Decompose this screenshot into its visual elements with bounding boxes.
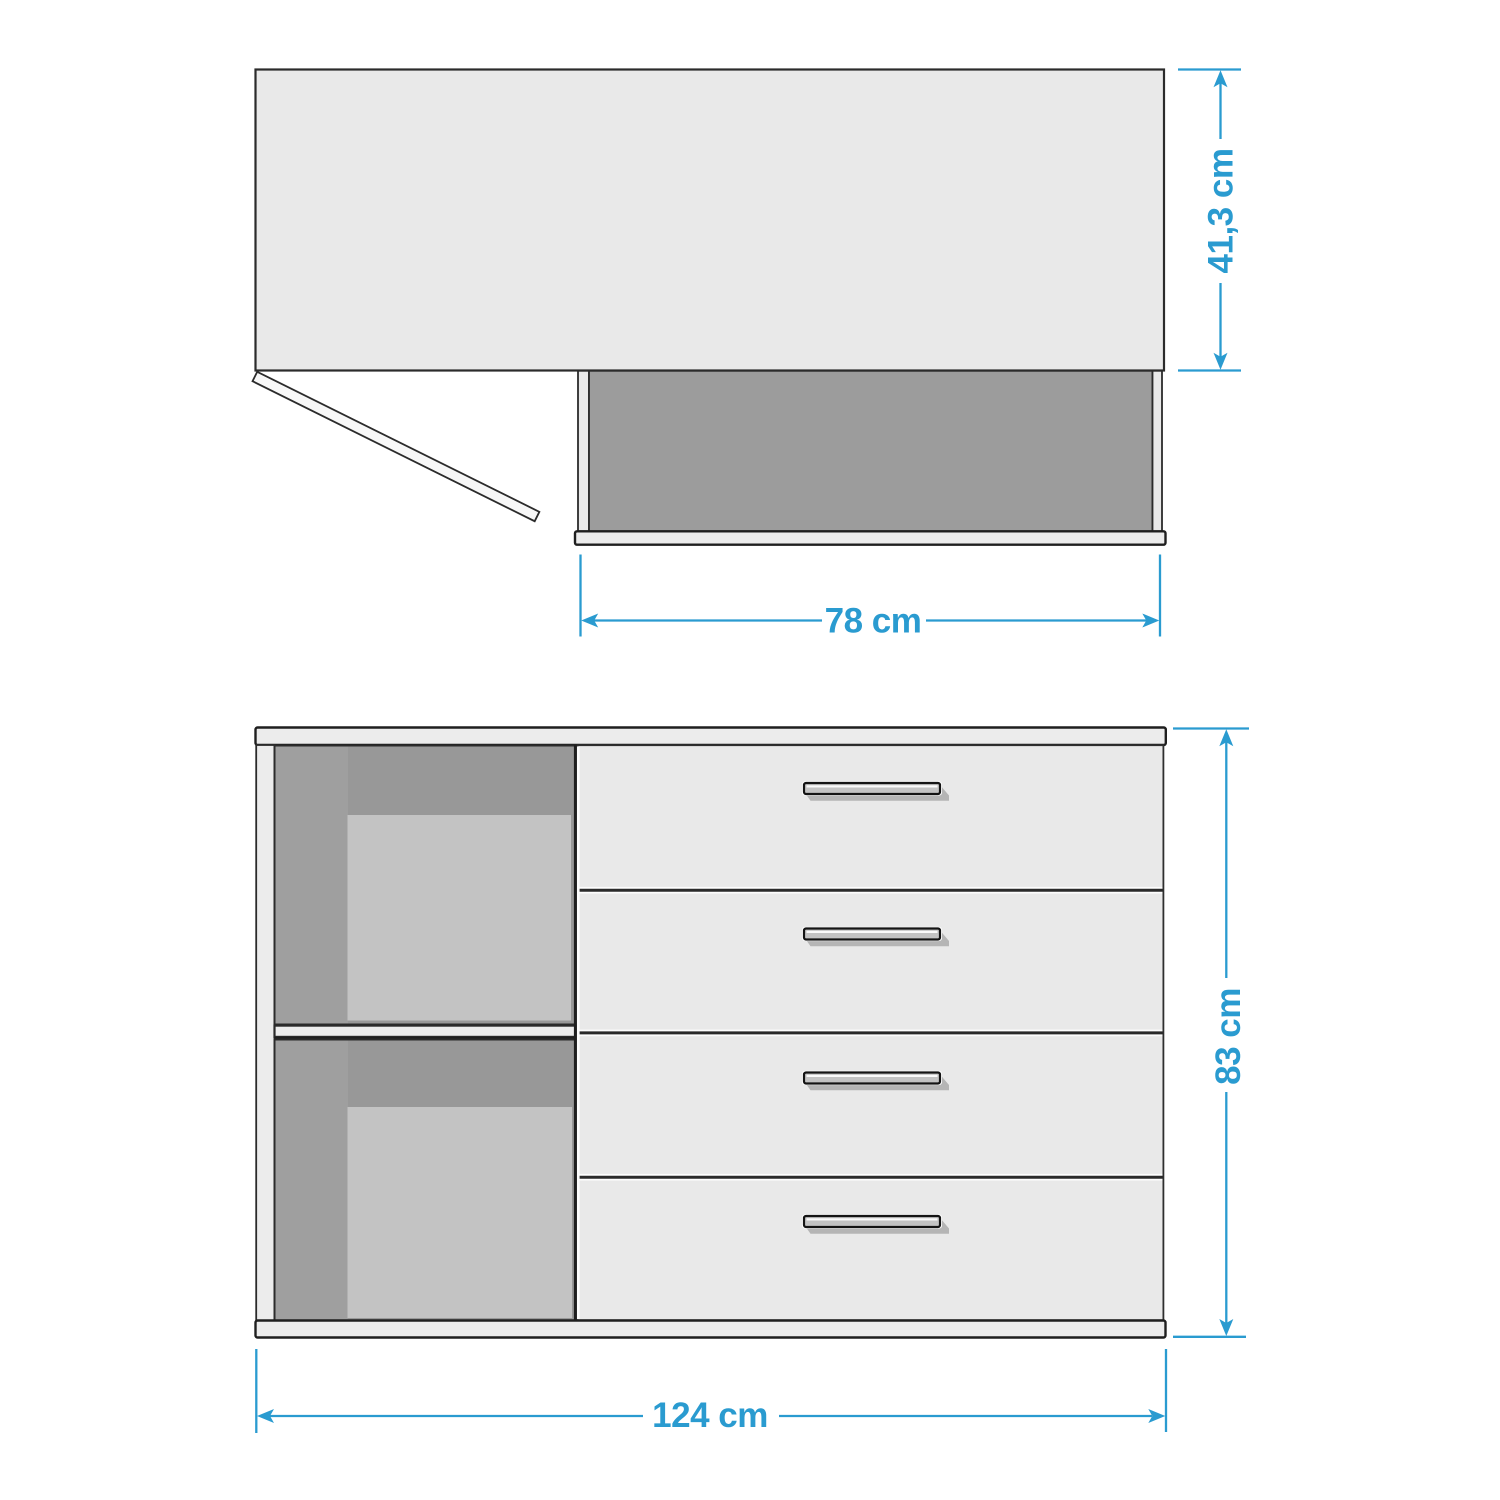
svg-text:41,3 cm: 41,3 cm bbox=[1202, 149, 1241, 274]
svg-text:78 cm: 78 cm bbox=[825, 602, 922, 641]
svg-text:124 cm: 124 cm bbox=[652, 1396, 768, 1435]
svg-text:83 cm: 83 cm bbox=[1209, 988, 1248, 1085]
